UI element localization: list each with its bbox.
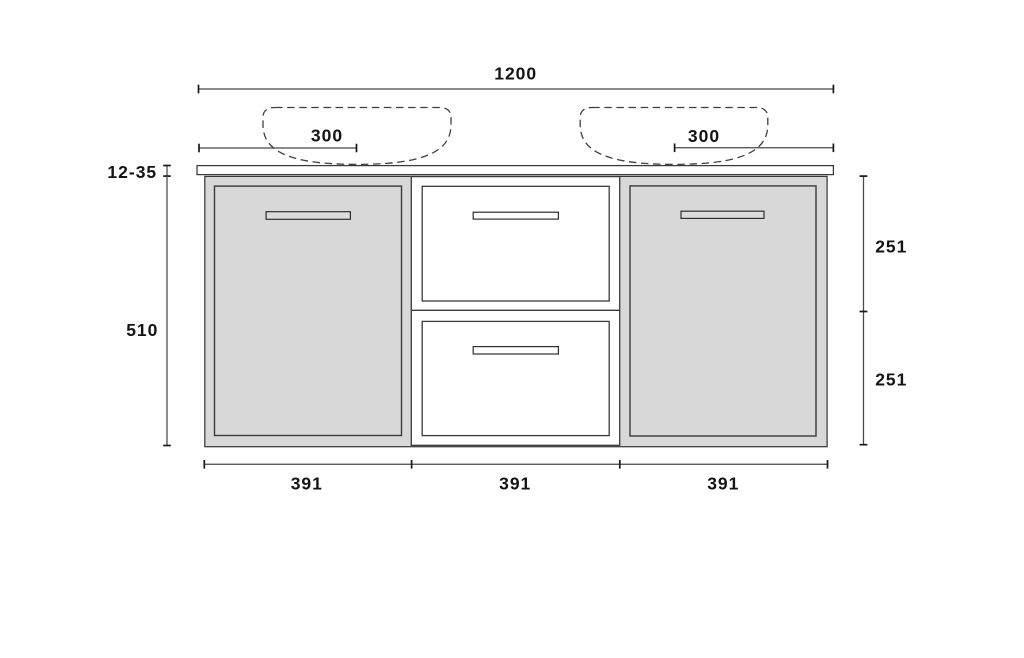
svg-text:510: 510: [126, 320, 158, 340]
svg-text:391: 391: [707, 473, 739, 493]
svg-text:251: 251: [875, 237, 907, 257]
svg-text:251: 251: [875, 369, 907, 389]
svg-text:391: 391: [499, 473, 531, 493]
svg-text:391: 391: [291, 473, 323, 493]
svg-text:1200: 1200: [494, 64, 537, 84]
svg-text:12-35: 12-35: [107, 162, 157, 182]
svg-text:300: 300: [311, 126, 343, 146]
svg-text:300: 300: [688, 126, 720, 146]
